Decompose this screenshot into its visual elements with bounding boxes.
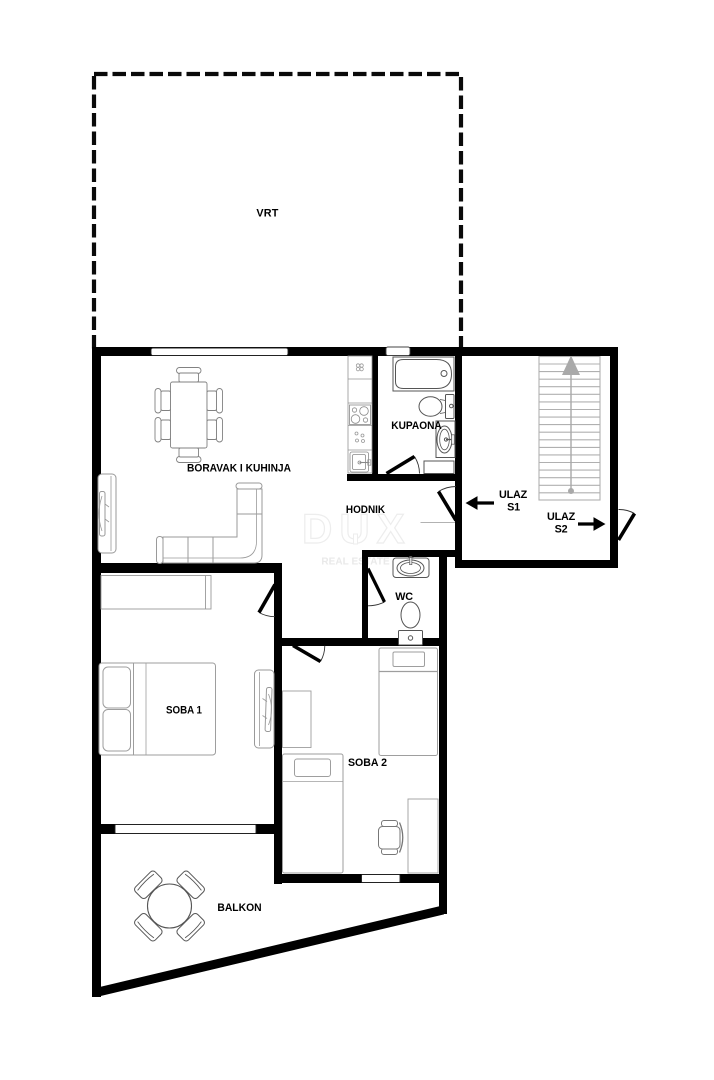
svg-text:SOBA 1: SOBA 1: [166, 705, 202, 717]
svg-text:REAL ESTATE: REAL ESTATE: [321, 557, 390, 568]
svg-text:ULAZ: ULAZ: [547, 511, 576, 523]
svg-text:BALKON: BALKON: [217, 902, 261, 914]
svg-text:SOBA 2: SOBA 2: [348, 757, 387, 769]
svg-text:S1: S1: [507, 502, 520, 514]
svg-text:KUPAONA: KUPAONA: [391, 420, 442, 432]
svg-text:S2: S2: [555, 524, 568, 536]
svg-text:WC: WC: [395, 591, 413, 603]
svg-text:ULAZ: ULAZ: [499, 489, 528, 501]
svg-text:BORAVAK I KUHINJA: BORAVAK I KUHINJA: [187, 463, 291, 475]
svg-text:VRT: VRT: [256, 208, 278, 220]
svg-text:HODNIK: HODNIK: [346, 504, 385, 516]
